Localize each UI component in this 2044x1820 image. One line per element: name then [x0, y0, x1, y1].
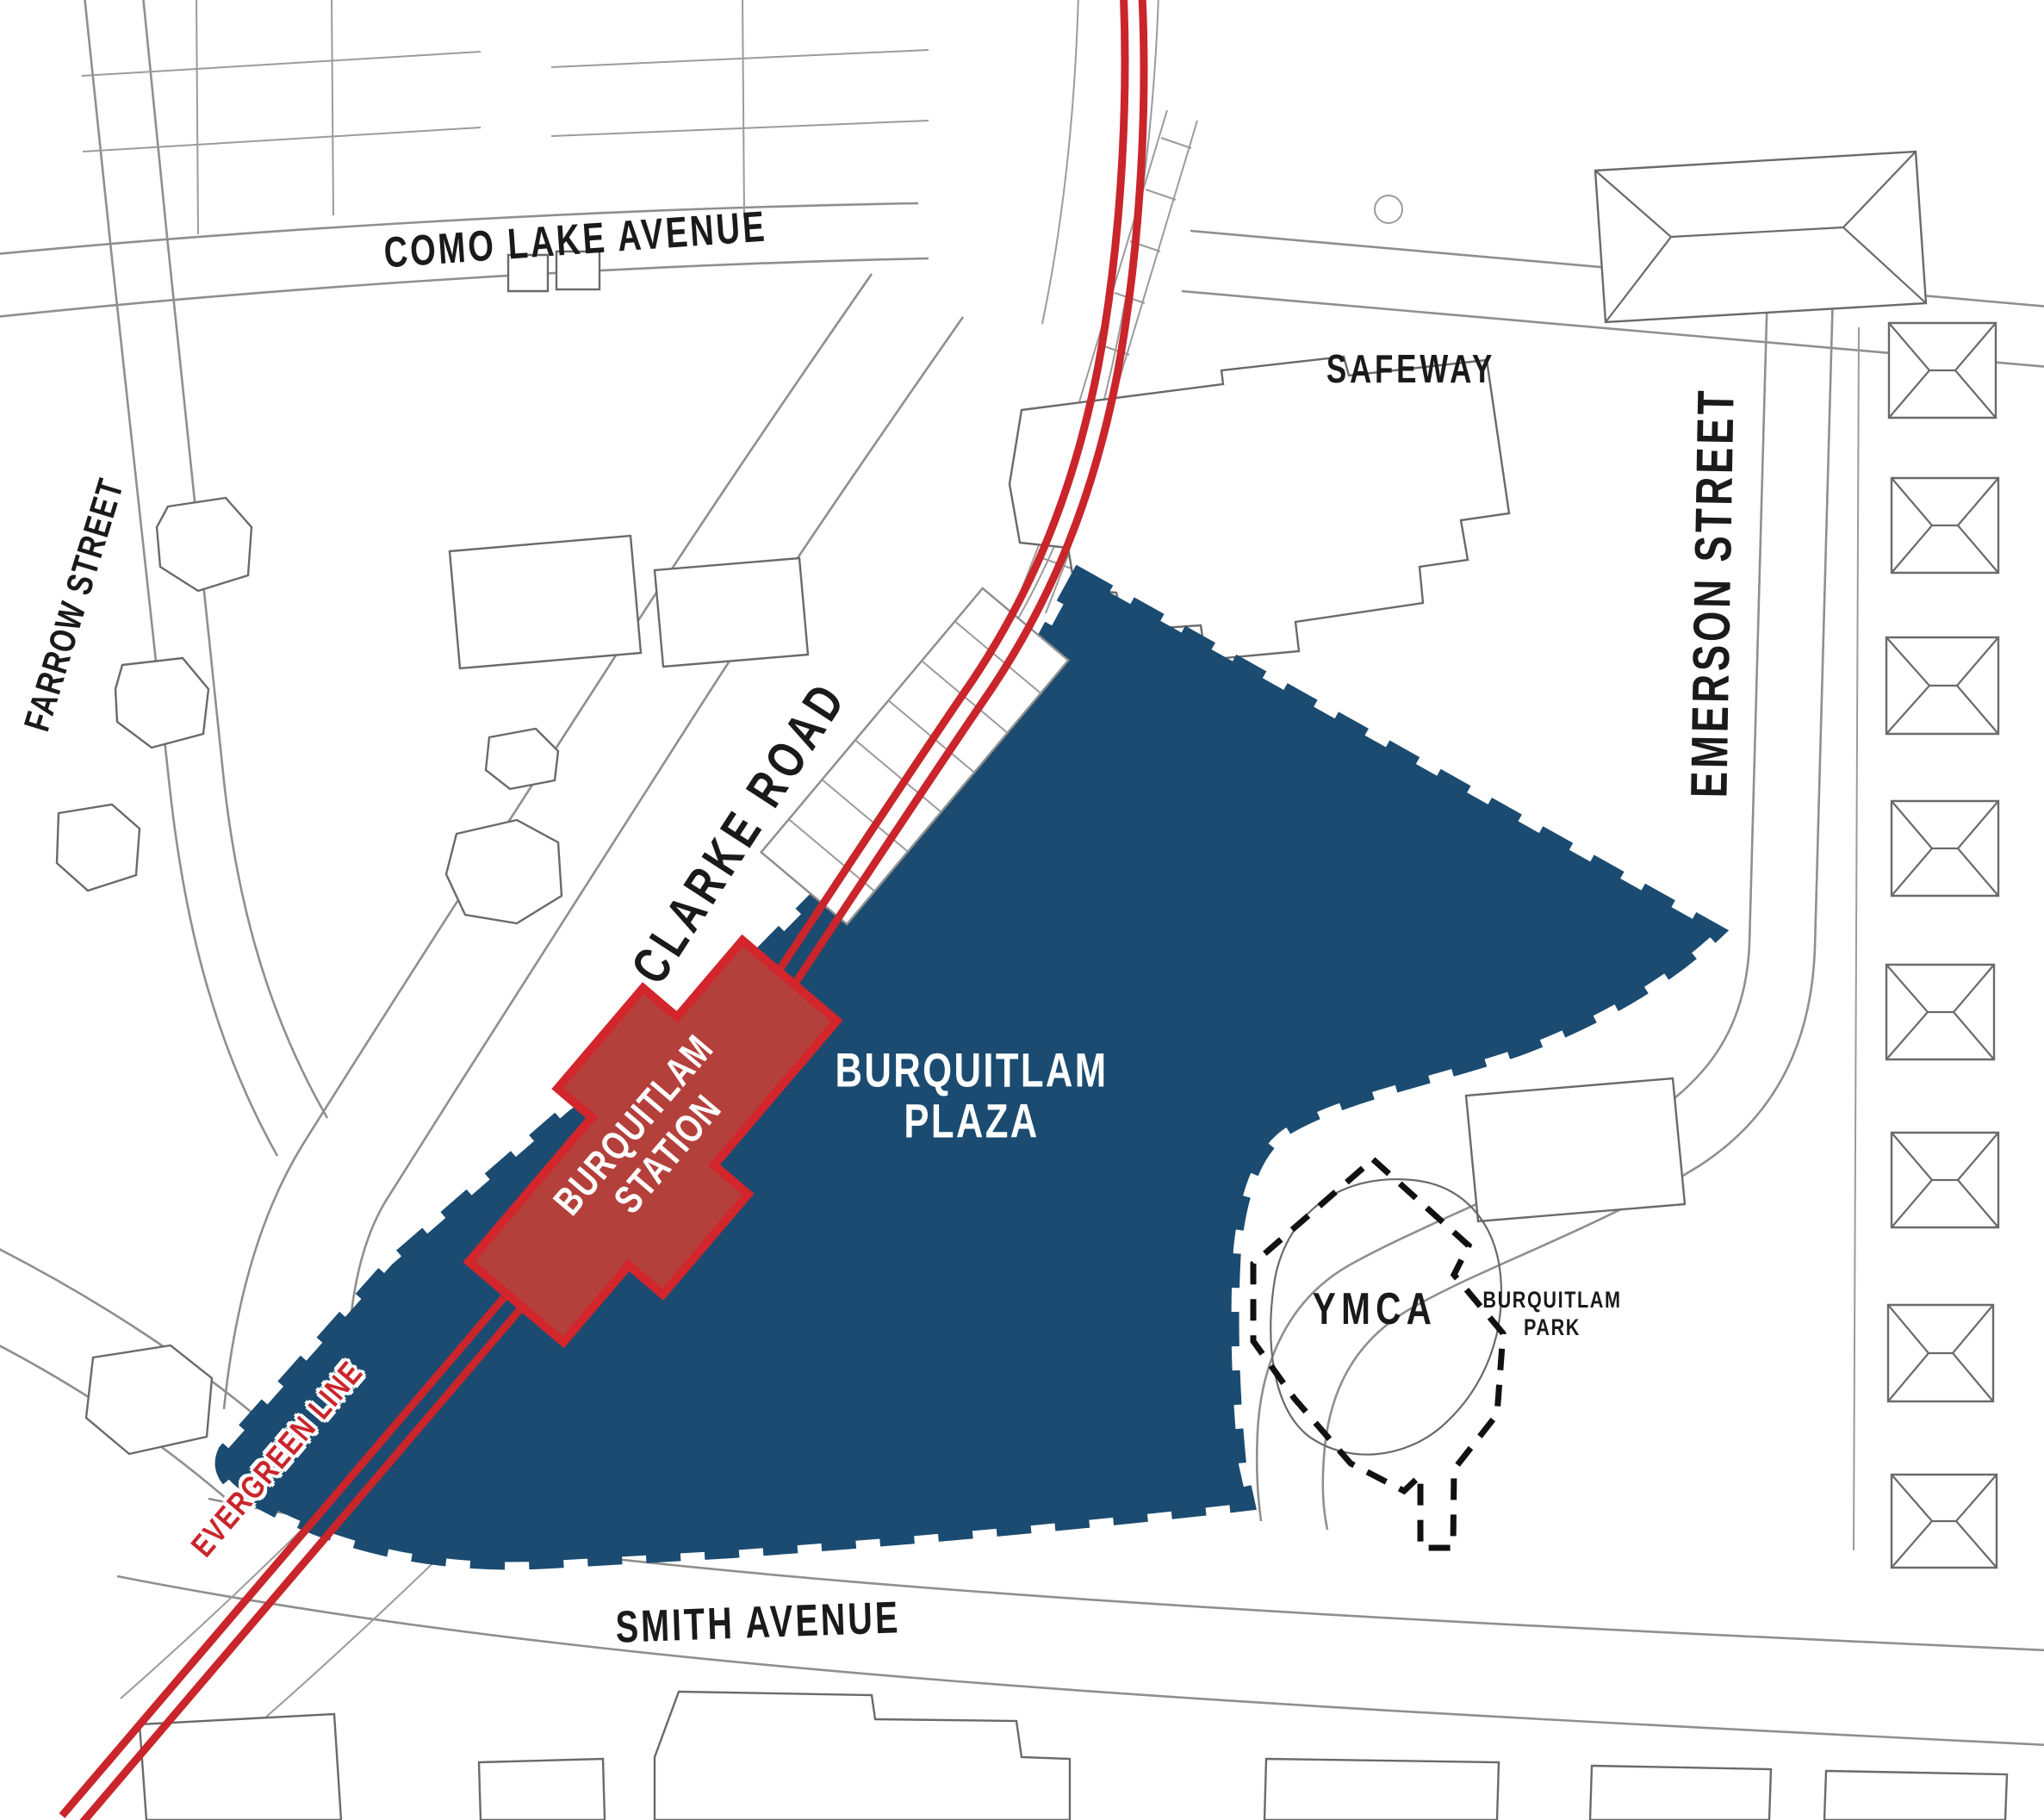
poi-label-safeway: SAFEWAY — [1326, 345, 1495, 392]
burquitlam-plaza-site-map: BURQUITLAM STATION COMO LAKE AVENUE FARR… — [0, 0, 2044, 1820]
park-label-line1: BURQUITLAM — [1482, 1287, 1621, 1314]
poi-label-ymca: YMCA — [1313, 1283, 1437, 1335]
site-label-line1: BURQUITLAM — [836, 1045, 1109, 1096]
ymca-area — [1253, 1159, 1503, 1548]
ymca-dashed-boundary — [1253, 1159, 1503, 1548]
street-label-smith-avenue: SMITH AVENUE — [615, 1592, 902, 1654]
poi-label-burquitlam-park: BURQUITLAM PARK — [1482, 1287, 1621, 1342]
map-linework-canvas: BURQUITLAM STATION — [0, 0, 2044, 1820]
site-label-burquitlam-plaza: BURQUITLAM PLAZA — [836, 1045, 1109, 1147]
park-label-line2: PARK — [1482, 1314, 1621, 1342]
site-label-line2: PLAZA — [836, 1096, 1109, 1146]
street-label-emerson-street: EMERSON STREET — [1679, 387, 1745, 798]
